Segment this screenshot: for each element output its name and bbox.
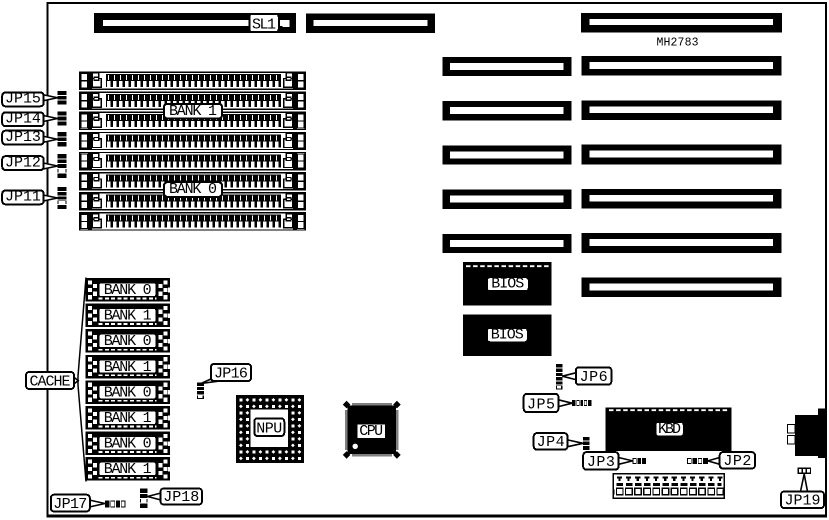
svg-text:SL1: SL1 bbox=[252, 17, 276, 34]
svg-text:JP11: JP11 bbox=[5, 189, 41, 206]
svg-text:JP2: JP2 bbox=[723, 453, 751, 470]
svg-text:JP3: JP3 bbox=[587, 454, 615, 471]
svg-text:MH2783: MH2783 bbox=[657, 37, 699, 50]
svg-text:CPU: CPU bbox=[359, 423, 383, 440]
svg-text:CACHE: CACHE bbox=[30, 373, 71, 390]
svg-text:JP16: JP16 bbox=[214, 365, 248, 382]
svg-text:JP5: JP5 bbox=[527, 397, 555, 414]
svg-text:BIOS: BIOS bbox=[491, 327, 524, 344]
svg-text:BANK 1: BANK 1 bbox=[169, 103, 217, 120]
svg-text:JP4: JP4 bbox=[537, 434, 565, 451]
svg-text:JP15: JP15 bbox=[5, 91, 41, 108]
svg-text:BANK 0: BANK 0 bbox=[104, 436, 152, 453]
svg-text:BANK 1: BANK 1 bbox=[104, 461, 152, 478]
svg-text:JP18: JP18 bbox=[163, 489, 199, 506]
svg-text:BANK 1: BANK 1 bbox=[104, 410, 152, 427]
svg-text:JP6: JP6 bbox=[580, 369, 608, 386]
svg-text:BANK 1: BANK 1 bbox=[104, 359, 152, 376]
svg-text:JP17: JP17 bbox=[53, 496, 87, 513]
svg-text:BANK 0: BANK 0 bbox=[104, 333, 152, 350]
svg-text:KBD: KBD bbox=[658, 421, 681, 438]
svg-text:BANK 1: BANK 1 bbox=[104, 308, 152, 325]
svg-text:BANK 0: BANK 0 bbox=[169, 181, 217, 198]
svg-text:JP14: JP14 bbox=[5, 111, 41, 128]
svg-text:BIOS: BIOS bbox=[491, 276, 524, 293]
svg-text:NPU: NPU bbox=[256, 421, 282, 438]
svg-text:BANK 0: BANK 0 bbox=[104, 282, 152, 299]
svg-text:BANK 0: BANK 0 bbox=[104, 384, 152, 401]
svg-text:JP13: JP13 bbox=[5, 129, 41, 146]
svg-text:JP19: JP19 bbox=[785, 492, 821, 509]
svg-text:JP12: JP12 bbox=[5, 154, 41, 171]
